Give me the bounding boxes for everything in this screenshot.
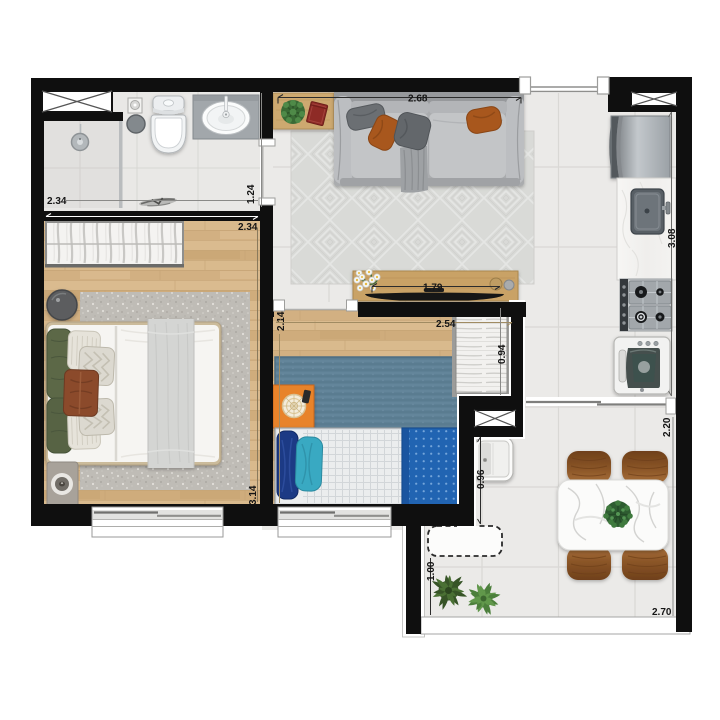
svg-text:0.94: 0.94 — [497, 344, 508, 364]
svg-text:2.70: 2.70 — [652, 607, 672, 618]
svg-text:3.08: 3.08 — [667, 228, 678, 248]
svg-text:2.68: 2.68 — [408, 94, 428, 105]
svg-text:2.20: 2.20 — [662, 417, 673, 437]
svg-text:1.24: 1.24 — [246, 184, 257, 204]
svg-text:1.00: 1.00 — [426, 561, 437, 581]
svg-text:3.14: 3.14 — [248, 485, 259, 505]
svg-text:2.54: 2.54 — [436, 319, 456, 330]
svg-text:2.34: 2.34 — [47, 196, 67, 207]
svg-text:1.79: 1.79 — [423, 283, 443, 294]
svg-text:0.96: 0.96 — [476, 469, 487, 489]
svg-text:2.34: 2.34 — [238, 222, 258, 233]
